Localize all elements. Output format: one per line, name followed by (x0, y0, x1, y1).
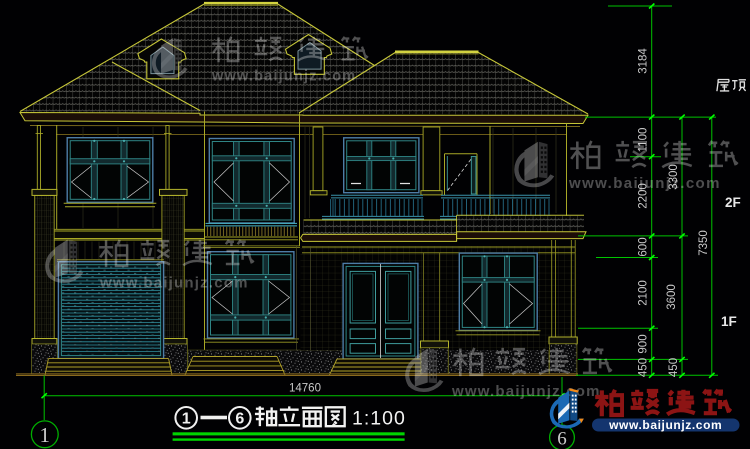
svg-text:www.baijunjz.com: www.baijunjz.com (211, 69, 356, 85)
svg-text:2100: 2100 (638, 280, 650, 306)
svg-text:3600: 3600 (666, 284, 678, 310)
svg-text:450: 450 (638, 358, 650, 377)
svg-text:6: 6 (235, 411, 244, 428)
svg-text:1:100: 1:100 (352, 408, 406, 430)
svg-text:7350: 7350 (698, 230, 710, 256)
svg-text:www.baijunjz.com: www.baijunjz.com (568, 175, 721, 192)
svg-text:www.baijunjz.com: www.baijunjz.com (99, 275, 249, 292)
svg-text:450: 450 (668, 358, 680, 377)
svg-text:3184: 3184 (638, 48, 650, 74)
svg-text:1F: 1F (721, 314, 737, 329)
svg-text:14760: 14760 (289, 383, 321, 395)
svg-text:1: 1 (182, 411, 191, 428)
svg-text:1: 1 (40, 423, 51, 447)
svg-text:600: 600 (638, 237, 650, 256)
svg-text:6: 6 (557, 429, 567, 449)
svg-text:2F: 2F (725, 195, 741, 210)
svg-text:www.baijunjz.com: www.baijunjz.com (608, 418, 722, 432)
svg-text:900: 900 (638, 334, 650, 353)
